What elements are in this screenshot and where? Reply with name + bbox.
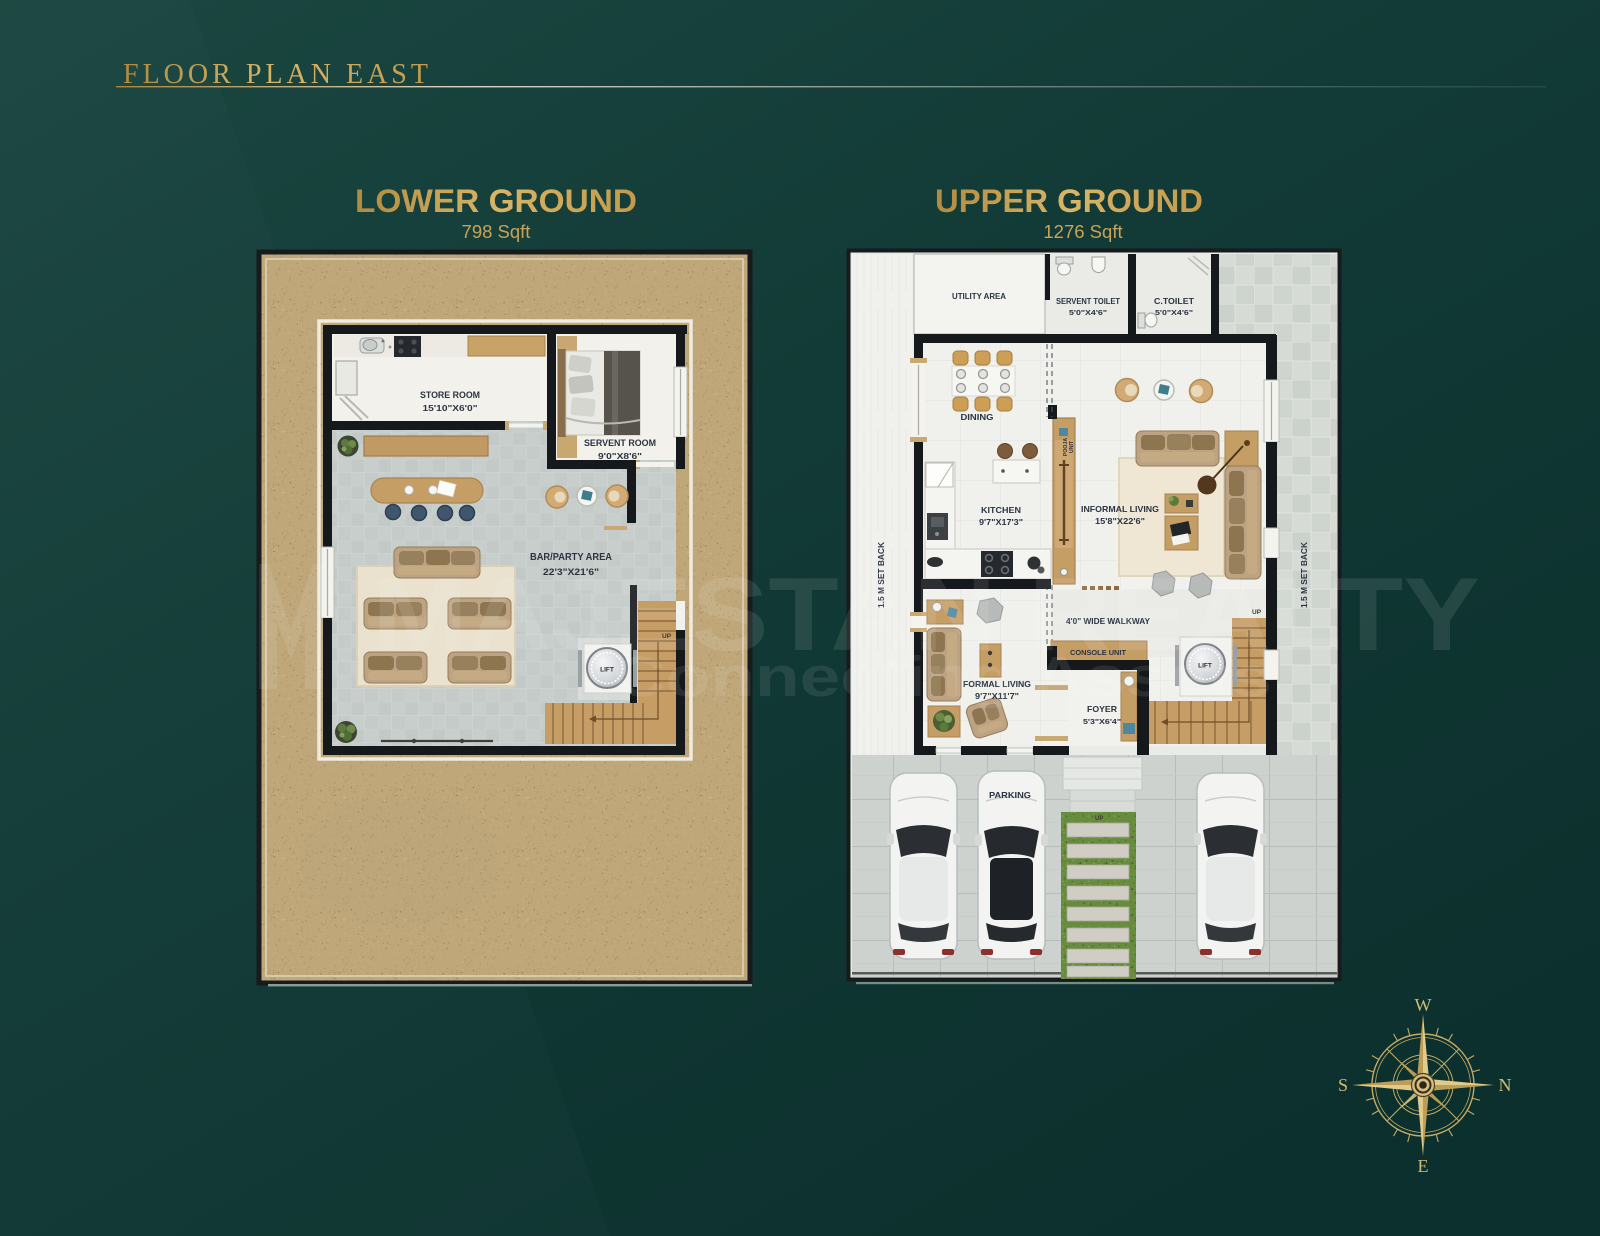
- svg-text:PARKING: PARKING: [989, 790, 1031, 800]
- svg-text:STORE ROOM: STORE ROOM: [420, 390, 480, 400]
- svg-text:Connecting Assets: Connecting Assets: [613, 645, 1272, 709]
- svg-text:UPPER GROUND: UPPER GROUND: [935, 183, 1203, 219]
- svg-text:UTILITY AREA: UTILITY AREA: [952, 292, 1006, 301]
- svg-text:DINING: DINING: [961, 412, 994, 422]
- svg-text:9'7"X17'3": 9'7"X17'3": [979, 518, 1023, 527]
- svg-text:15'10"X6'0": 15'10"X6'0": [423, 403, 478, 413]
- svg-text:15'8"X22'6": 15'8"X22'6": [1095, 517, 1145, 526]
- svg-text:E: E: [1418, 1156, 1429, 1176]
- svg-text:SERVENT ROOM: SERVENT ROOM: [584, 438, 656, 448]
- svg-text:1276 Sqft: 1276 Sqft: [1043, 221, 1122, 242]
- svg-text:5'3"X6'4": 5'3"X6'4": [1083, 717, 1122, 726]
- svg-text:UNIT: UNIT: [1069, 440, 1075, 453]
- svg-text:5'0"X4'6": 5'0"X4'6": [1155, 308, 1194, 317]
- svg-text:C.TOILET: C.TOILET: [1154, 297, 1194, 306]
- svg-text:798 Sqft: 798 Sqft: [462, 221, 531, 242]
- svg-text:LOWER GROUND: LOWER GROUND: [355, 183, 637, 219]
- svg-text:N: N: [1499, 1075, 1512, 1095]
- svg-text:FLOOR PLAN EAST: FLOOR PLAN EAST: [123, 59, 432, 90]
- svg-text:INFORMAL LIVING: INFORMAL LIVING: [1081, 504, 1159, 514]
- svg-text:UP: UP: [1095, 816, 1103, 822]
- svg-text:SERVENT TOILET: SERVENT TOILET: [1056, 297, 1120, 306]
- svg-text:5'0"X4'6": 5'0"X4'6": [1069, 308, 1108, 317]
- svg-text:S: S: [1338, 1075, 1348, 1095]
- svg-text:9'0"X8'6": 9'0"X8'6": [598, 451, 642, 461]
- svg-text:KITCHEN: KITCHEN: [981, 505, 1021, 515]
- svg-text:W: W: [1415, 995, 1432, 1015]
